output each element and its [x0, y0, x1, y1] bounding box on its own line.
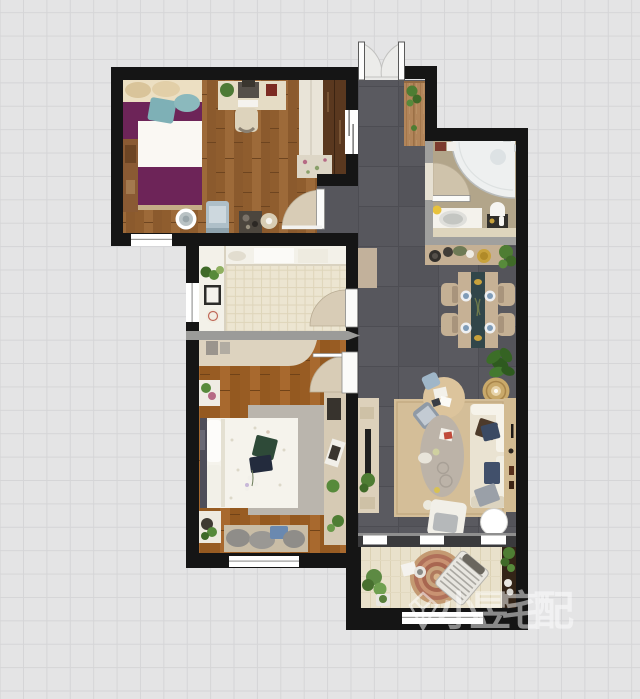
- svg-text:小昱宅配: 小昱宅配: [438, 588, 574, 634]
